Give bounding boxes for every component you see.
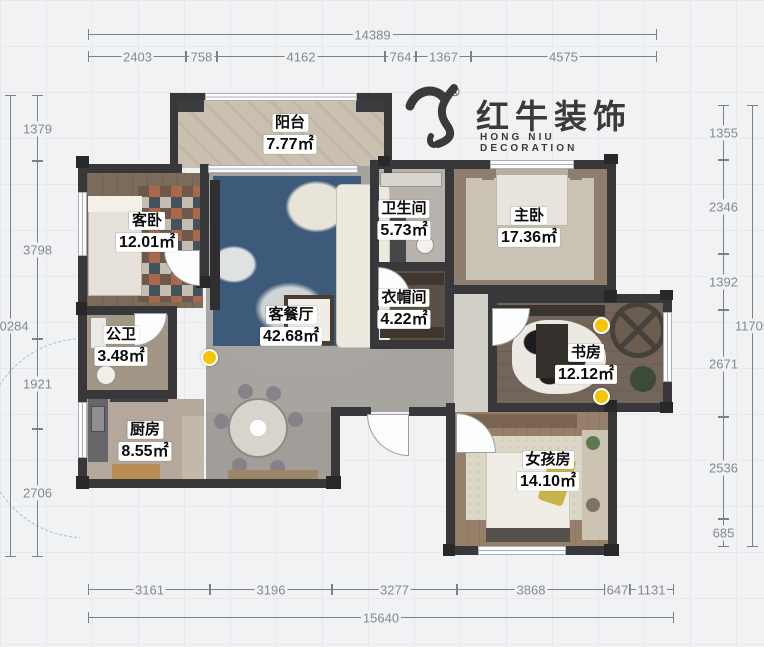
wall [170, 93, 178, 173]
room-area: 42.68㎡ [260, 327, 322, 346]
room-name: 厨房 [127, 421, 163, 439]
wall [168, 306, 177, 399]
dim-segment: 2403 [88, 51, 187, 62]
wall-pillar [76, 302, 87, 315]
wall-pillar [378, 156, 390, 166]
wall-pillar [76, 156, 89, 168]
dim-segment: 3277 [331, 584, 458, 595]
dim-value: 2706 [21, 485, 54, 500]
dining-chair [214, 414, 229, 429]
marker-dot [593, 388, 610, 405]
window [663, 312, 672, 382]
dim-value: 647 [605, 582, 631, 597]
window [78, 192, 87, 256]
wall [331, 407, 371, 416]
dining-chair [238, 384, 253, 399]
wall [446, 285, 616, 294]
kitchen-counter-right [182, 416, 204, 480]
kitchen-sink [91, 406, 105, 432]
room-area: 4.22㎡ [377, 310, 430, 329]
room-area: 5.73㎡ [377, 221, 430, 240]
dim-value: 4162 [285, 49, 318, 64]
marker-dot [201, 349, 218, 366]
dim-value: 2346 [707, 200, 740, 215]
room-label-balcony: 阳台7.77㎡ [263, 114, 316, 154]
brand-subtitle: HONG NIU DECORATION [480, 132, 639, 154]
dim-segment: 1379 [32, 95, 43, 162]
room-name: 客餐厅 [265, 306, 316, 324]
wall-pillar [76, 476, 89, 489]
registered-mark: ® [450, 84, 460, 99]
dim-segment: 1392 [718, 253, 729, 311]
dim-value: 2403 [121, 49, 154, 64]
dim-value: 758 [189, 49, 215, 64]
room-area: 3.48㎡ [94, 347, 147, 366]
window [78, 402, 87, 458]
study-wheel-decor [610, 302, 666, 358]
dim-value: 1921 [21, 377, 54, 392]
wall [200, 164, 209, 284]
dim-value: 3161 [133, 582, 166, 597]
dim-value: 15640 [361, 610, 401, 625]
wall-pillar [604, 154, 618, 164]
wall [78, 479, 210, 488]
dim-value: 14389 [352, 27, 392, 42]
wall [370, 340, 454, 349]
room-label-bathroom: 卫生间5.73㎡ [377, 200, 430, 240]
room-name: 衣帽间 [378, 289, 429, 307]
balcony-planter [356, 100, 384, 112]
dim-left-total: 10284 [5, 95, 16, 557]
bathroom-vanity [380, 172, 442, 187]
dim-segment: 2706 [32, 428, 43, 557]
dining-chair [266, 386, 281, 401]
balcony-slider-window [208, 165, 358, 173]
wall-pillar [604, 290, 617, 302]
entry-door-arc [367, 414, 409, 456]
girls-bed-frame [486, 528, 570, 542]
room-name: 女孩房 [522, 451, 573, 469]
plant [586, 436, 600, 450]
room-name: 客卧 [129, 212, 165, 230]
dim-value: 4575 [547, 49, 580, 64]
wall [445, 160, 454, 349]
room-label-kitchen: 厨房8.55㎡ [118, 421, 171, 461]
room-name: 卫生间 [378, 200, 429, 218]
wall [488, 294, 672, 303]
wall-pillar [660, 402, 673, 413]
hallway-floor [454, 294, 490, 412]
room-label-study: 书房12.12㎡ [555, 344, 617, 384]
dim-segment: 2536 [718, 416, 729, 520]
room-name: 主卧 [511, 207, 547, 225]
guest-bed-pillows [88, 196, 142, 212]
dim-value: 3277 [378, 582, 411, 597]
dim-top-total: 14389 [88, 29, 657, 40]
room-area: 14.10㎡ [517, 472, 579, 491]
room-area: 12.01㎡ [116, 233, 178, 252]
dim-value: 10284 [0, 319, 31, 334]
wall [78, 164, 182, 173]
room-label-guest-bedroom: 客卧12.01㎡ [116, 212, 178, 252]
room-label-master-bedroom: 主卧17.36㎡ [498, 207, 560, 247]
room-area: 7.77㎡ [263, 135, 316, 154]
washing-machine [95, 364, 117, 386]
kitchen-table [112, 464, 160, 479]
marker-dot [593, 317, 610, 334]
dining-chair [288, 412, 303, 427]
study-chair [630, 366, 656, 392]
dim-bottom-total: 15640 [88, 612, 674, 623]
dim-value: 1392 [707, 275, 740, 290]
wall-pillar [604, 544, 619, 556]
dim-value: 11705 [733, 319, 764, 334]
dim-segment: 764 [384, 51, 417, 62]
dim-value: 1355 [707, 126, 740, 141]
room-area: 8.55㎡ [118, 442, 171, 461]
dim-value: 3798 [21, 243, 54, 258]
wall [78, 390, 177, 399]
room-label-girls-room: 女孩房14.10㎡ [517, 451, 579, 491]
balcony-planter [178, 100, 204, 112]
wall [202, 479, 338, 488]
wall-pillar [660, 290, 673, 300]
dining-table [228, 398, 288, 458]
dim-segment: 758 [185, 51, 218, 62]
dim-value: 2671 [707, 356, 740, 371]
dim-segment: 2346 [718, 159, 729, 255]
dim-segment: 647 [604, 584, 631, 595]
wall [488, 403, 672, 412]
dim-segment: 685 [718, 518, 729, 547]
dim-value: 1131 [636, 582, 668, 597]
decor-pot [586, 498, 600, 512]
dim-segment: 1921 [32, 338, 43, 430]
wall-pillar [443, 544, 455, 556]
room-name: 阳台 [272, 114, 308, 132]
room-area: 17.36㎡ [498, 228, 560, 247]
dim-segment: 2671 [718, 309, 729, 418]
wall [607, 160, 616, 294]
window [490, 160, 574, 169]
dim-right-total: 11705 [747, 105, 758, 547]
dim-segment: 3196 [209, 584, 333, 595]
dim-value: 2536 [707, 461, 740, 476]
floorplan-canvas: 14389 2403 758 4162 764 1367 4575 3161 3… [0, 0, 764, 647]
dim-segment: 1131 [629, 584, 674, 595]
dim-segment: 3798 [32, 160, 43, 340]
dim-segment: 1355 [718, 105, 729, 161]
dim-value: 3868 [515, 582, 548, 597]
wall [608, 412, 617, 555]
dim-value: 685 [711, 525, 737, 540]
wall-pillar [326, 476, 341, 489]
dim-value: 764 [388, 49, 414, 64]
wall [446, 403, 455, 555]
dim-value: 3196 [255, 582, 288, 597]
dim-segment: 4575 [470, 51, 657, 62]
dim-segment: 1367 [415, 51, 472, 62]
room-name: 书房 [568, 344, 604, 362]
window [478, 546, 566, 555]
room-label-cloakroom: 衣帽间4.22㎡ [377, 289, 430, 329]
brand-name: 红牛装饰 [476, 90, 632, 138]
room-label-public-bathroom: 公卫3.48㎡ [94, 326, 147, 366]
dim-segment: 3161 [88, 584, 211, 595]
tv-cabinet [210, 180, 220, 310]
dim-value: 1367 [427, 49, 460, 64]
dim-segment: 3868 [456, 584, 606, 595]
room-label-living-dining: 客餐厅42.68㎡ [260, 306, 322, 346]
brand-logo: ® 红牛装饰 HONG NIU DECORATION [404, 82, 639, 148]
dim-segment: 4162 [216, 51, 386, 62]
window [205, 93, 357, 101]
dim-value: 1379 [21, 121, 54, 136]
room-area: 12.12㎡ [555, 365, 617, 384]
room-name: 公卫 [103, 326, 139, 344]
wall [409, 407, 455, 416]
